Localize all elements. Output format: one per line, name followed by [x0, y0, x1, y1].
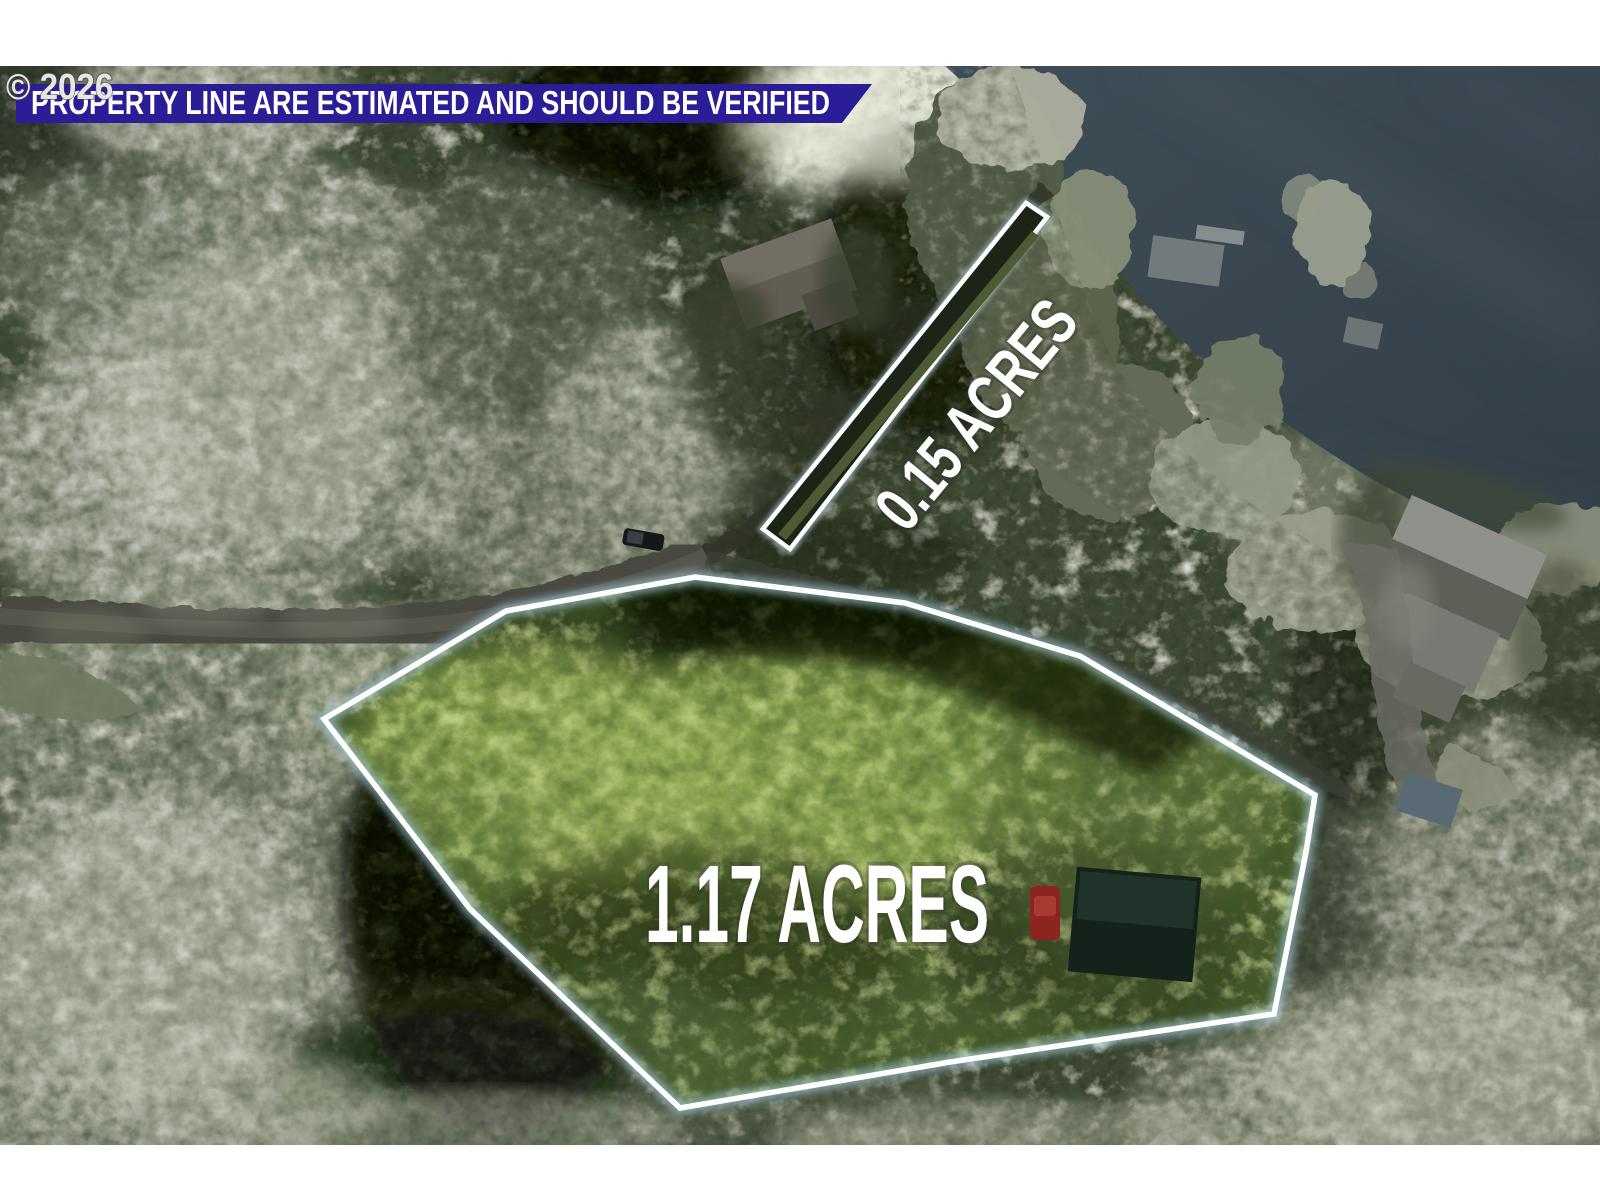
svg-text:PROPERTY LINE ARE ESTIMATED AN: PROPERTY LINE ARE ESTIMATED AND SHOULD B…	[31, 84, 830, 121]
svg-text:1.17 ACRES: 1.17 ACRES	[645, 843, 989, 966]
svg-text:© 2026: © 2026	[6, 68, 113, 108]
